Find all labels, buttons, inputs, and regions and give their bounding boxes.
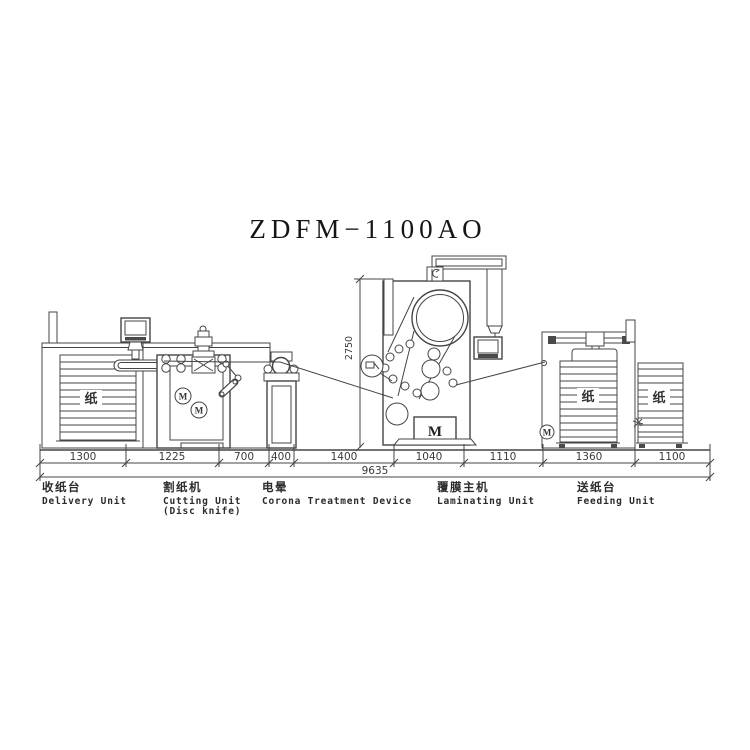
dim-segment-label: 700 (234, 451, 254, 463)
machine-diagram-canvas: ZDFM−1100AO 纸 (0, 0, 750, 750)
dim-segment-label: 1400 (331, 451, 358, 463)
unit-label-cn: 割纸机 (163, 480, 202, 494)
paper-label-feeder-right: 纸 (652, 390, 665, 406)
dim-total-label: 9635 (362, 465, 389, 477)
feeding-unit-drawing: 纸 M 纸 (540, 320, 688, 448)
dim-height-label: 2750 (344, 336, 355, 360)
dim-segment-label: 1225 (159, 451, 186, 463)
paper-label-delivery: 纸 (84, 391, 97, 407)
unit-label-en: Delivery Unit (42, 496, 127, 507)
feeder-pole (626, 320, 635, 342)
unit-label-en: Laminating Unit (437, 496, 535, 507)
laminator-drum (412, 290, 468, 346)
dim-segment-label: 1100 (659, 451, 686, 463)
dim-segment-label: 400 (271, 451, 291, 463)
unit-label-en: Feeding Unit (577, 496, 655, 507)
motor-label: M (195, 406, 204, 416)
dim-segment-label: 1110 (490, 451, 517, 463)
unit-label-cn: 送纸台 (576, 480, 616, 494)
laminator-control-panel (474, 337, 502, 359)
laminating-unit-drawing: 2750 M (344, 256, 506, 451)
motor-label: M (179, 392, 188, 402)
feeder-suction-head (586, 332, 604, 346)
corona-roller (273, 358, 290, 375)
motor-label: M (428, 424, 442, 440)
dimension-chain: 1300 1225 700 400 1400 1040 1110 1360 11… (36, 444, 714, 481)
unit-labels: 收纸台 Delivery Unit 割纸机 Cutting Unit (Disc… (42, 480, 655, 517)
unit-label-en2: (Disc knife) (163, 506, 241, 517)
diagram-title: ZDFM−1100AO (249, 214, 486, 244)
dim-segment-label: 1040 (416, 451, 443, 463)
unit-label-cn: 电晕 (262, 480, 288, 494)
exhaust-duct (487, 269, 502, 337)
unit-label-cn: 覆膜主机 (437, 480, 489, 494)
corona-pedestal (267, 381, 296, 448)
unit-label-en: Corona Treatment Device (262, 496, 412, 507)
dim-segment-label: 1360 (576, 451, 603, 463)
motor-label: M (543, 428, 552, 438)
dim-segment-label: 1300 (70, 451, 97, 463)
paper-label-feeder-left: 纸 (581, 389, 594, 405)
unit-label-cn: 收纸台 (42, 480, 81, 494)
